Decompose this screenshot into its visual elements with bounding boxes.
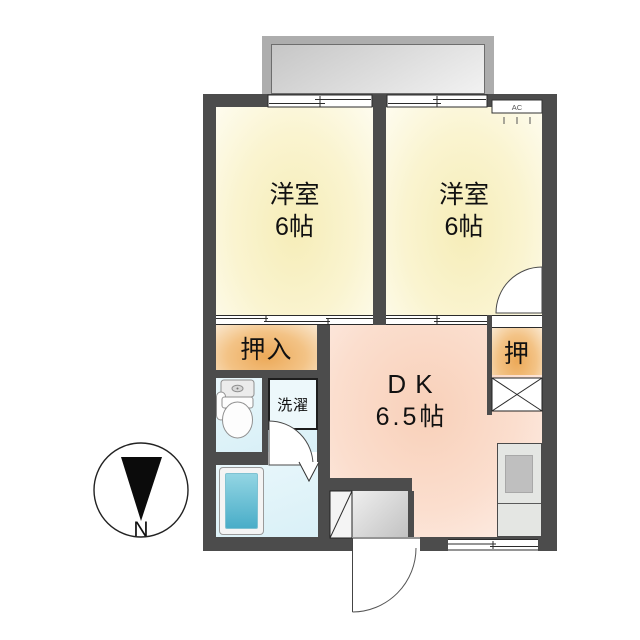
entrance-genkan-floor: [352, 491, 408, 537]
compass: [94, 443, 188, 537]
bathtub-water: [225, 473, 258, 529]
closet-oshi: 押: [492, 328, 542, 375]
wall-above-bathroom: [216, 452, 268, 465]
compass-north-label: N: [133, 518, 148, 541]
laundry-label: 洗濯: [277, 394, 309, 415]
balcony-deck: [271, 44, 485, 94]
toilet-room: [216, 378, 262, 452]
closet-oshiire: 押入: [216, 325, 317, 370]
wall-between-bedrooms: [373, 107, 386, 325]
bedroom-left: [216, 107, 373, 315]
wall-entrance-top: [330, 478, 412, 491]
bedroom-right: [386, 107, 542, 315]
closet-oshi-label: 押: [504, 334, 530, 370]
floor-plan-canvas: 押入 押 洗濯 洋室 6帖 洋室 6帖 DK 6.5帖: [0, 0, 640, 640]
laundry-pan: 洗濯: [268, 378, 318, 430]
closet-oshiire-label: 押入: [240, 330, 293, 366]
wall-entrance-right: [408, 491, 414, 537]
wall-dk-left: [317, 325, 330, 537]
kitchen-sink: [505, 455, 533, 493]
wall-below-closet: [216, 370, 317, 378]
kitchen-counter-divider: [498, 503, 541, 504]
